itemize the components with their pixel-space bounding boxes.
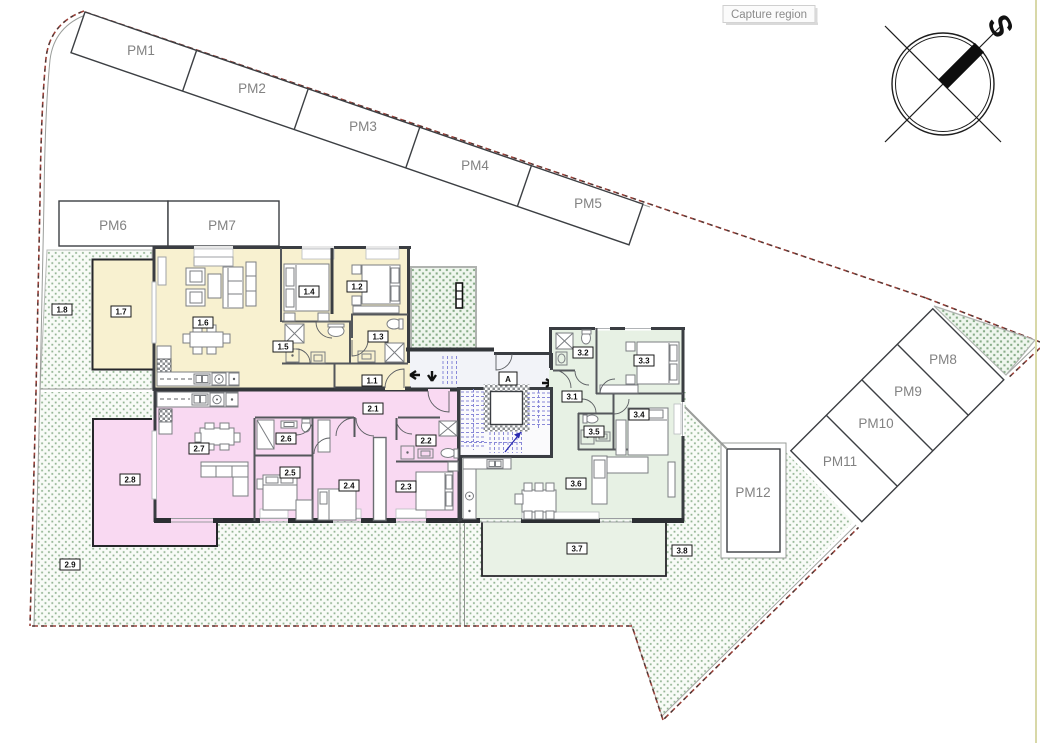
svg-text:PM11: PM11 [823, 454, 857, 469]
svg-text:2.4: 2.4 [343, 482, 355, 491]
svg-text:1.8: 1.8 [56, 306, 68, 315]
svg-text:PM5: PM5 [574, 196, 602, 211]
svg-text:2.8: 2.8 [124, 476, 136, 485]
svg-text:1.1: 1.1 [366, 377, 378, 386]
svg-text:3.7: 3.7 [571, 545, 583, 554]
svg-text:2.3: 2.3 [400, 483, 412, 492]
svg-text:3.6: 3.6 [570, 480, 582, 489]
svg-text:PM1: PM1 [127, 43, 155, 58]
svg-text:3.5: 3.5 [588, 428, 600, 437]
svg-text:PM2: PM2 [238, 81, 266, 96]
svg-text:PM12: PM12 [735, 485, 770, 500]
svg-text:2.9: 2.9 [64, 561, 76, 570]
svg-text:1.6: 1.6 [197, 319, 209, 328]
svg-text:2.5: 2.5 [284, 469, 296, 478]
svg-text:1.3: 1.3 [372, 333, 384, 342]
svg-text:2.2: 2.2 [420, 437, 432, 446]
svg-text:PM8: PM8 [929, 352, 957, 367]
svg-text:PM4: PM4 [461, 158, 489, 173]
svg-text:2.7: 2.7 [193, 445, 205, 454]
svg-text:PM7: PM7 [208, 218, 236, 233]
svg-text:1.7: 1.7 [115, 308, 127, 317]
svg-text:PM9: PM9 [894, 384, 922, 399]
svg-text:3.3: 3.3 [638, 357, 650, 366]
svg-text:3.2: 3.2 [577, 349, 589, 358]
svg-text:PM10: PM10 [858, 416, 893, 431]
svg-text:2.6: 2.6 [280, 435, 292, 444]
svg-text:1.4: 1.4 [303, 288, 315, 297]
svg-text:3.4: 3.4 [633, 411, 645, 420]
svg-text:PM6: PM6 [99, 218, 127, 233]
svg-text:2.1: 2.1 [367, 405, 379, 414]
svg-text:1.2: 1.2 [351, 283, 363, 292]
svg-text:Capture region: Capture region [731, 9, 807, 21]
svg-text:3.1: 3.1 [566, 393, 578, 402]
svg-text:1.5: 1.5 [277, 343, 289, 352]
svg-text:PM3: PM3 [349, 119, 377, 134]
svg-text:3.8: 3.8 [676, 547, 688, 556]
svg-text:A: A [505, 375, 511, 384]
